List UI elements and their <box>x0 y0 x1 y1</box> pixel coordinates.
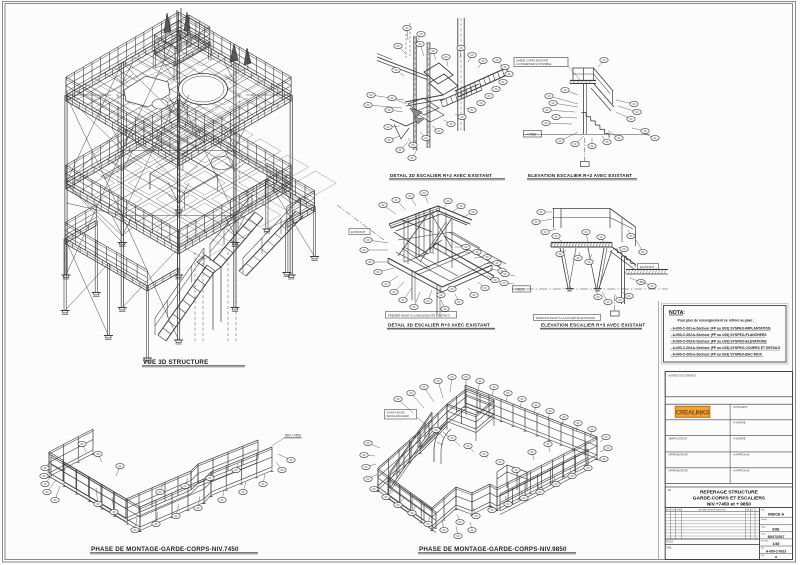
svg-text:- A-000-C-001-a-Sécheur (FP ou: - A-000-C-001-a-Sécheur (FP ou U03) SYSP… <box>671 327 771 331</box>
svg-text:AUTRES MODIFICATIONS: AUTRES MODIFICATIONS <box>699 509 726 512</box>
svg-text:- A-000-C-003-b-Sécheur (FP ou: - A-000-C-003-b-Sécheur (FP ou U03) SYSP… <box>671 340 768 344</box>
svg-text:PREMIER AVANT A LA MACHINE (FP: PREMIER AVANT A LA MACHINE (FP2 EXISTANT… <box>388 313 450 317</box>
svg-text:VER: VER <box>677 510 682 512</box>
svg-text:EXISTANT: EXISTANT <box>640 265 655 269</box>
svg-text:A VERIFIE: A VERIFIE <box>733 421 746 425</box>
svg-text:ELEVATION ESCALIER R+2 AVEC EX: ELEVATION ESCALIER R+2 AVEC EXISTANT <box>528 173 632 178</box>
svg-text:REPERAGE STRUCTURE: REPERAGE STRUCTURE <box>700 490 759 496</box>
svg-text:CREALINKS: CREALINKS <box>676 410 710 417</box>
svg-text:-: - <box>775 521 776 525</box>
svg-text:VUE 3D STRUCTURE: VUE 3D STRUCTURE <box>143 359 208 366</box>
svg-text:NIV.+7450 et + 9850: NIV.+7450 et + 9850 <box>707 501 751 507</box>
svg-text:VOIR PLAN DE: VOIR PLAN DE <box>387 411 405 415</box>
svg-text:Statut: Statut <box>761 518 767 521</box>
svg-text:VERIFICATEUR: VERIFICATEUR <box>668 437 687 441</box>
svg-text:A APPROUVE: A APPROUVE <box>733 453 750 457</box>
svg-text:1/40: 1/40 <box>773 542 780 546</box>
svg-text:- A-000-C-004-b-Sécheur (FP ou: - A-000-C-004-b-Sécheur (FP ou U03) SYSP… <box>671 346 782 350</box>
svg-text:PHASE DE MONTAGE-GARDE-CORPS-N: PHASE DE MONTAGE-GARDE-CORPS-NIV.9850 <box>419 546 567 553</box>
svg-text:A PROJETE: A PROJETE <box>733 405 748 409</box>
svg-text:DETAIL 3D ESCALIER R+3 AVEC E: DETAIL 3D ESCALIER R+3 AVEC EXISTANT <box>388 323 490 328</box>
svg-text:DA: DA <box>746 509 750 512</box>
svg-text:GARDE CORPS EXISTANT: GARDE CORPS EXISTANT <box>516 58 549 62</box>
svg-text:30/07/2017: 30/07/2017 <box>768 535 785 539</box>
svg-text:+7450: +7450 <box>526 133 536 137</box>
svg-text:No: No <box>668 488 672 492</box>
svg-text:Pour plus de renseignement se: Pour plus de renseignement se référer au… <box>678 319 755 323</box>
svg-text:- A-000-C-002-b-Sécheur (FP ou: - A-000-C-002-b-Sécheur (FP ou U03) SYSP… <box>671 333 768 337</box>
svg-text:ELEVATION ESCALIER R+3 AVEC EX: ELEVATION ESCALIER R+3 AVEC EXISTANT <box>541 323 645 328</box>
svg-text:+9850: +9850 <box>515 288 525 292</box>
svg-text:Date: Date <box>761 532 766 535</box>
svg-text:PHASE DE MONTAGE-GARDE-CORPS-N: PHASE DE MONTAGE-GARDE-CORPS-NIV.7450 <box>91 546 239 553</box>
svg-text:DETAIL 3D ESCALIER R+2 AVEC E: DETAIL 3D ESCALIER R+2 AVEC EXISTANT <box>390 173 492 178</box>
svg-text:a: a <box>775 555 777 559</box>
svg-text:DETAIL ESCALIER: DETAIL ESCALIER <box>387 414 409 418</box>
svg-text:Rev.: Rev. <box>761 509 766 511</box>
svg-text:Type: Type <box>761 526 767 528</box>
svg-text:DESSOUS AVANT A LA GACHETTE (E: DESSOUS AVANT A LA GACHETTE (EXISTANT) <box>536 316 595 320</box>
svg-text:A VERIFIE: A VERIFIE <box>733 437 746 441</box>
svg-text:APPROBATEUR: APPROBATEUR <box>668 469 688 473</box>
svg-text:- A-000-C-005-a-Sécheur (FP ou: - A-000-C-005-a-Sécheur (FP ou U03) SYSP… <box>671 353 763 357</box>
svg-text:LIRE: LIRE <box>666 546 672 549</box>
svg-text:EXE: EXE <box>772 528 780 532</box>
svg-text:GARDE-CORPS ET ESCALIERS: GARDE-CORPS ET ESCALIERS <box>693 496 766 502</box>
svg-text:IND: IND <box>666 510 670 512</box>
svg-text:A-000-C-0013: A-000-C-0013 <box>766 549 786 553</box>
svg-text:AUTRES DOCUMENTS: AUTRES DOCUMENTS <box>668 374 696 378</box>
svg-text:A APPROUVE: A APPROUVE <box>733 469 750 473</box>
svg-text:EXISTANT: EXISTANT <box>351 230 366 234</box>
svg-text:NIV.+7450: NIV.+7450 <box>285 434 301 438</box>
svg-text:APPROBATEUR: APPROBATEUR <box>668 453 688 457</box>
svg-text:Echelle: Echelle <box>761 541 769 543</box>
svg-text:A CONSERVER SI POSSIBLE: A CONSERVER SI POSSIBLE <box>516 62 552 66</box>
svg-text:FOLIO: FOLIO <box>666 540 673 543</box>
svg-text:INDICE A: INDICE A <box>768 513 784 517</box>
